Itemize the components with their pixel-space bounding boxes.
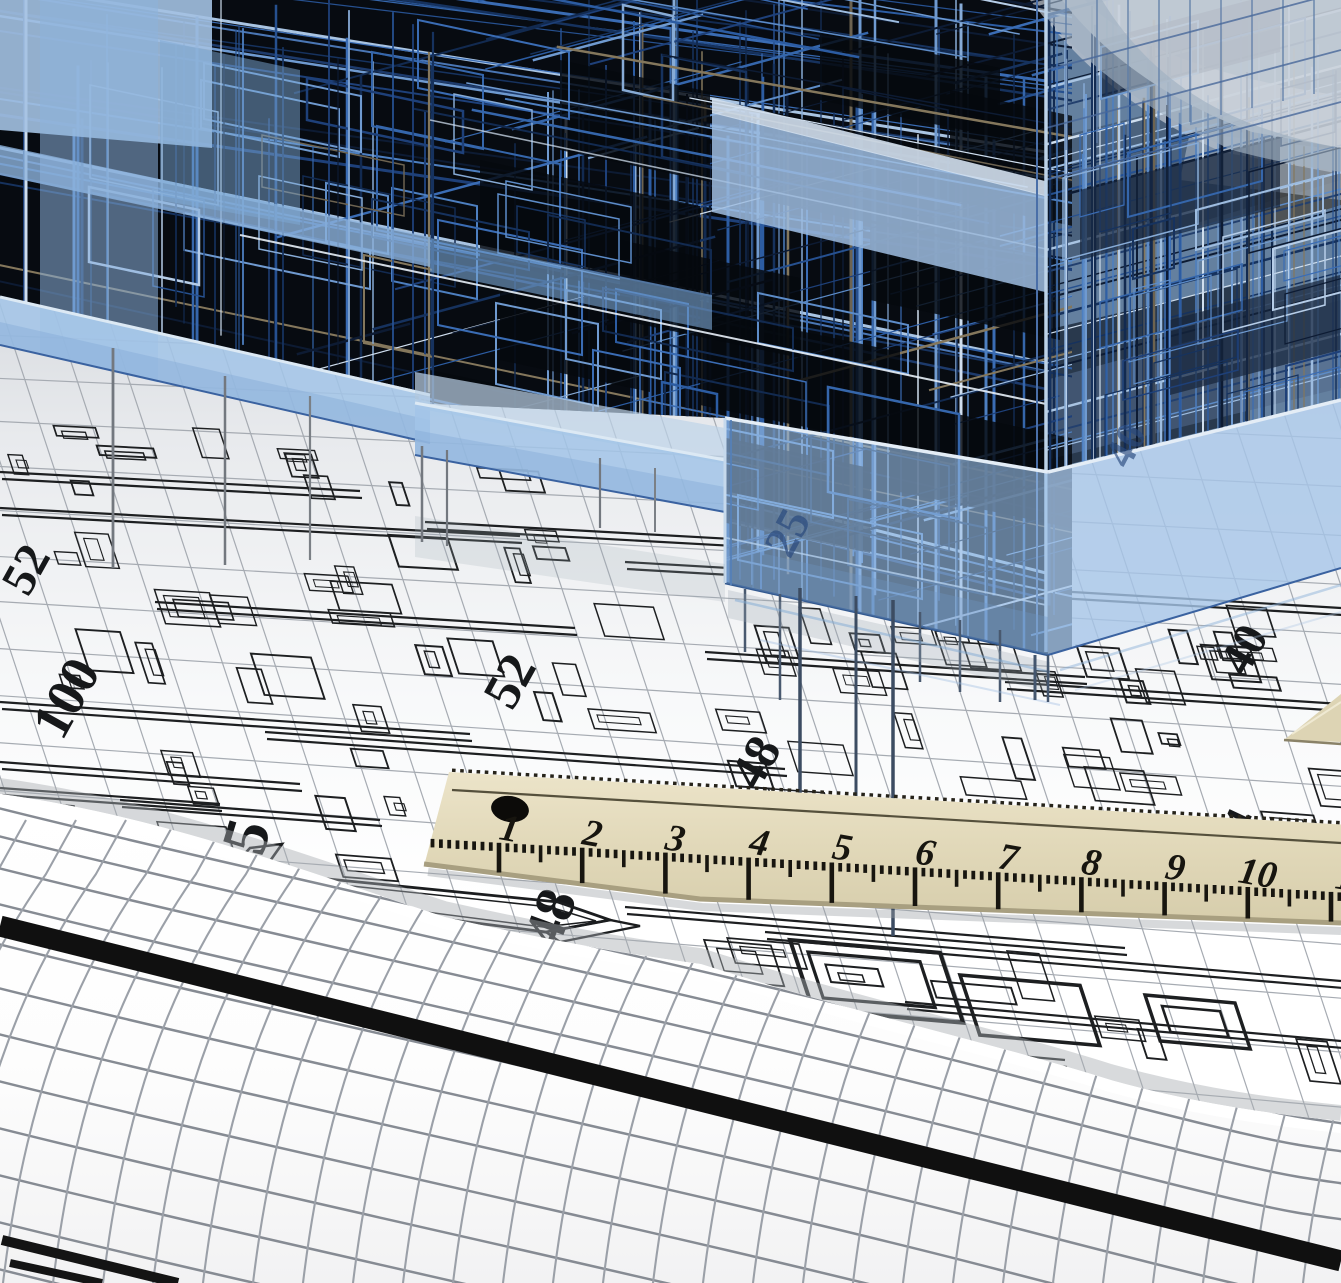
svg-text:10: 10: [1235, 850, 1280, 898]
